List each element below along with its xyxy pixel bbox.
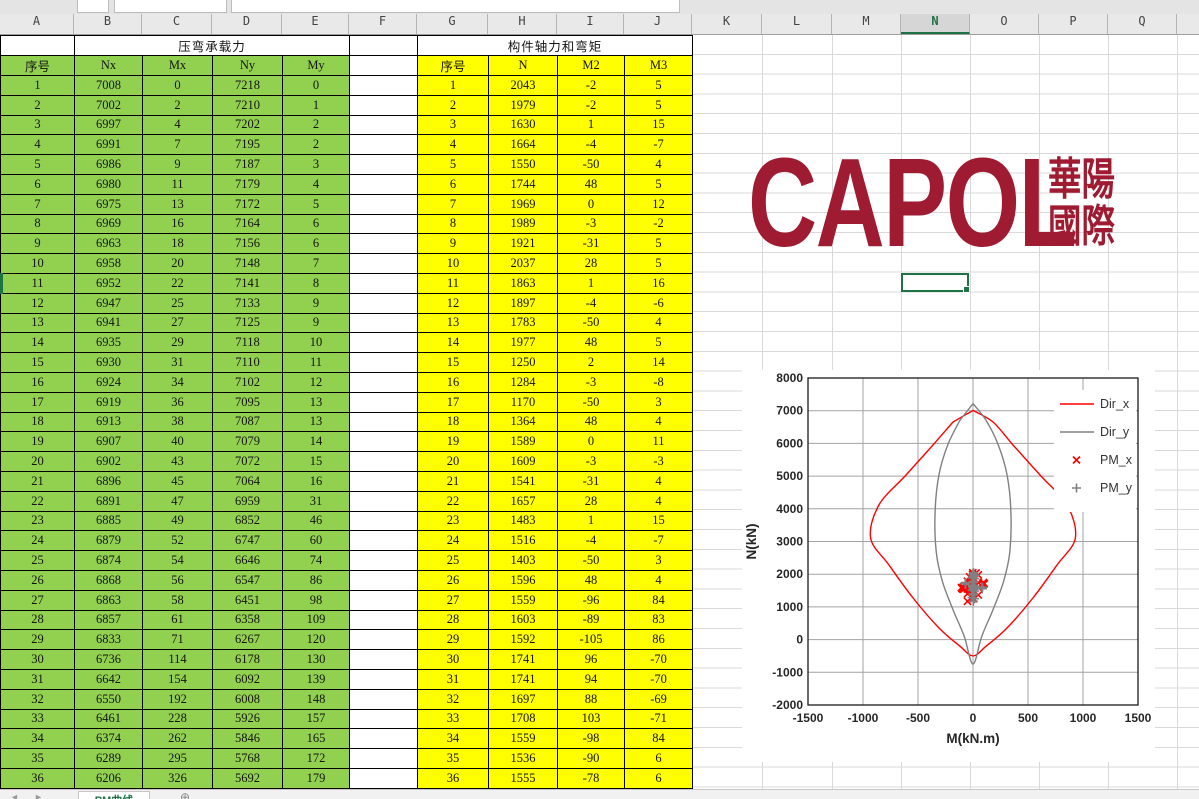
cell[interactable] <box>350 471 418 491</box>
cell[interactable]: 24 <box>418 531 489 551</box>
selected-cell[interactable] <box>901 273 969 292</box>
cell[interactable]: 1559 <box>489 729 558 749</box>
cell[interactable]: -2 <box>625 214 693 234</box>
cell[interactable]: 6958 <box>75 254 143 274</box>
column-header-c[interactable]: C <box>142 14 212 34</box>
cell[interactable]: 45 <box>143 471 213 491</box>
cell[interactable]: 1863 <box>489 273 558 293</box>
cell[interactable] <box>350 392 418 412</box>
cell[interactable]: 6986 <box>75 155 143 175</box>
cell[interactable]: 6863 <box>75 590 143 610</box>
cell[interactable]: 16 <box>143 214 213 234</box>
cell[interactable]: 7141 <box>213 273 283 293</box>
cell[interactable]: 6947 <box>75 293 143 313</box>
cell[interactable]: -50 <box>558 155 625 175</box>
formula-input-edge[interactable] <box>231 0 680 13</box>
cell[interactable]: 3 <box>625 392 693 412</box>
cell[interactable] <box>350 729 418 749</box>
cell[interactable]: 7118 <box>213 333 283 353</box>
cell[interactable]: 6 <box>1 174 75 194</box>
cell[interactable]: 6879 <box>75 531 143 551</box>
cell[interactable]: 29 <box>1 630 75 650</box>
cell[interactable]: 5 <box>283 194 350 214</box>
cell[interactable]: 4 <box>625 570 693 590</box>
cell[interactable]: 7102 <box>213 372 283 392</box>
cell[interactable]: 6941 <box>75 313 143 333</box>
cell[interactable]: 6550 <box>75 689 143 709</box>
cell[interactable]: -70 <box>625 669 693 689</box>
cell[interactable]: 34 <box>1 729 75 749</box>
cell[interactable]: 5 <box>625 95 693 115</box>
cell[interactable]: 4 <box>283 174 350 194</box>
cell[interactable]: 14 <box>1 333 75 353</box>
cell[interactable]: 6885 <box>75 511 143 531</box>
cell[interactable] <box>350 491 418 511</box>
cell[interactable]: 2 <box>283 115 350 135</box>
cell[interactable]: -3 <box>558 214 625 234</box>
cell[interactable]: 6969 <box>75 214 143 234</box>
cell[interactable]: 14 <box>625 353 693 373</box>
cell[interactable]: 1783 <box>489 313 558 333</box>
cell[interactable]: -50 <box>558 551 625 571</box>
cell[interactable] <box>350 511 418 531</box>
cell[interactable] <box>350 174 418 194</box>
cell[interactable]: 52 <box>143 531 213 551</box>
cell[interactable]: 6913 <box>75 412 143 432</box>
cell[interactable]: -8 <box>625 372 693 392</box>
cell[interactable]: 18 <box>418 412 489 432</box>
cell[interactable]: 1592 <box>489 630 558 650</box>
cell[interactable]: 6 <box>625 749 693 769</box>
cell[interactable]: 21 <box>1 471 75 491</box>
cell[interactable]: 1979 <box>489 95 558 115</box>
cell[interactable]: 96 <box>558 650 625 670</box>
cell[interactable]: 19 <box>418 432 489 452</box>
cell[interactable]: -3 <box>558 452 625 472</box>
cell[interactable] <box>350 135 418 155</box>
cell[interactable] <box>350 610 418 630</box>
cell[interactable]: 13 <box>283 392 350 412</box>
cell[interactable]: 130 <box>283 650 350 670</box>
sheet-tab-pm-curve[interactable]: PM曲线 <box>78 791 150 799</box>
cell[interactable]: 18 <box>1 412 75 432</box>
cell[interactable]: 10 <box>283 333 350 353</box>
cell[interactable]: 7095 <box>213 392 283 412</box>
data-tables[interactable]: 压弯承载力 构件轴力和弯矩 序号 Nx Mx Ny My 序号 N M2 M3 … <box>0 35 693 789</box>
cell[interactable]: 192 <box>143 689 213 709</box>
cell[interactable]: 7064 <box>213 471 283 491</box>
cell[interactable]: 6930 <box>75 353 143 373</box>
cell[interactable]: 13 <box>418 313 489 333</box>
cell[interactable]: 7210 <box>213 95 283 115</box>
cell[interactable]: 86 <box>625 630 693 650</box>
cell[interactable] <box>350 293 418 313</box>
cell[interactable]: 36 <box>1 768 75 788</box>
cell[interactable]: 6868 <box>75 570 143 590</box>
cell[interactable]: 9 <box>283 293 350 313</box>
cell[interactable]: 6547 <box>213 570 283 590</box>
cell[interactable] <box>350 115 418 135</box>
add-sheet-icon[interactable]: ⊕ <box>180 791 190 799</box>
cell[interactable] <box>350 768 418 788</box>
cell[interactable]: 31 <box>418 669 489 689</box>
cell[interactable] <box>350 531 418 551</box>
cell[interactable]: -2 <box>558 95 625 115</box>
cell[interactable] <box>350 630 418 650</box>
cell[interactable]: 114 <box>143 650 213 670</box>
cell[interactable]: 295 <box>143 749 213 769</box>
cell[interactable]: 179 <box>283 768 350 788</box>
cell[interactable]: -4 <box>558 135 625 155</box>
cell[interactable]: 1170 <box>489 392 558 412</box>
cell[interactable]: 1657 <box>489 491 558 511</box>
cell[interactable]: 28 <box>418 610 489 630</box>
cell[interactable]: 29 <box>143 333 213 353</box>
cell[interactable] <box>350 709 418 729</box>
cell[interactable]: 5 <box>625 333 693 353</box>
cell[interactable]: -98 <box>558 729 625 749</box>
column-header-l[interactable]: L <box>762 14 832 34</box>
cell[interactable]: 6 <box>625 768 693 788</box>
cell[interactable]: 1364 <box>489 412 558 432</box>
cell[interactable]: 12 <box>1 293 75 313</box>
name-box-edge[interactable] <box>77 0 109 13</box>
cell[interactable]: 6206 <box>75 768 143 788</box>
cell[interactable]: 10 <box>418 254 489 274</box>
cell[interactable]: 7172 <box>213 194 283 214</box>
cell[interactable] <box>350 155 418 175</box>
cell[interactable]: 15 <box>625 511 693 531</box>
cell[interactable]: 20 <box>418 452 489 472</box>
cell[interactable]: 16 <box>1 372 75 392</box>
cell[interactable]: 148 <box>283 689 350 709</box>
cell[interactable]: 6736 <box>75 650 143 670</box>
cell[interactable]: 83 <box>625 610 693 630</box>
column-header-q[interactable]: Q <box>1108 14 1177 34</box>
cell[interactable] <box>350 353 418 373</box>
cell[interactable]: 5768 <box>213 749 283 769</box>
cell[interactable]: 262 <box>143 729 213 749</box>
cell[interactable]: 1921 <box>489 234 558 254</box>
cell[interactable]: 1596 <box>489 570 558 590</box>
cell[interactable]: 1250 <box>489 353 558 373</box>
cell[interactable]: 94 <box>558 669 625 689</box>
cell[interactable]: 7110 <box>213 353 283 373</box>
cell[interactable]: 5 <box>625 254 693 274</box>
cell[interactable]: -78 <box>558 768 625 788</box>
column-header-g[interactable]: G <box>417 14 488 34</box>
column-header-n[interactable]: N <box>901 14 970 34</box>
cell[interactable]: 25 <box>1 551 75 571</box>
cell[interactable]: 1589 <box>489 432 558 452</box>
cell[interactable]: 9 <box>1 234 75 254</box>
cell[interactable]: 7164 <box>213 214 283 234</box>
cell[interactable]: 15 <box>1 353 75 373</box>
column-header-a[interactable]: A <box>0 14 74 34</box>
cell[interactable]: 46 <box>283 511 350 531</box>
cell[interactable]: 24 <box>1 531 75 551</box>
cell[interactable]: 36 <box>143 392 213 412</box>
cell[interactable]: 5846 <box>213 729 283 749</box>
cell[interactable]: -4 <box>558 531 625 551</box>
cell[interactable]: 5926 <box>213 709 283 729</box>
cell[interactable]: 6833 <box>75 630 143 650</box>
cell[interactable]: 25 <box>418 551 489 571</box>
cell[interactable]: -7 <box>625 531 693 551</box>
cell[interactable]: 40 <box>143 432 213 452</box>
cell[interactable]: 25 <box>143 293 213 313</box>
cell[interactable] <box>350 194 418 214</box>
cell[interactable]: 1744 <box>489 174 558 194</box>
cell[interactable]: 4 <box>625 412 693 432</box>
cell[interactable]: 7008 <box>75 76 143 96</box>
tab-scroll-left-icon[interactable]: ◄ <box>10 792 19 799</box>
column-header-d[interactable]: D <box>212 14 282 34</box>
cell[interactable]: 6896 <box>75 471 143 491</box>
cell[interactable]: 6959 <box>213 491 283 511</box>
cell[interactable]: 84 <box>625 729 693 749</box>
cell[interactable]: 61 <box>143 610 213 630</box>
cell[interactable]: 1 <box>1 76 75 96</box>
cell[interactable]: 14 <box>283 432 350 452</box>
cell[interactable]: 7133 <box>213 293 283 313</box>
column-header-b[interactable]: B <box>74 14 142 34</box>
cell[interactable] <box>350 689 418 709</box>
cell[interactable]: 4 <box>625 491 693 511</box>
cell[interactable]: 8 <box>283 273 350 293</box>
cell[interactable]: 13 <box>143 194 213 214</box>
cell[interactable]: 43 <box>143 452 213 472</box>
cell[interactable]: 4 <box>625 155 693 175</box>
cell[interactable]: 165 <box>283 729 350 749</box>
cell[interactable]: 6 <box>418 174 489 194</box>
cell[interactable]: 1555 <box>489 768 558 788</box>
cell[interactable]: 28 <box>1 610 75 630</box>
cell[interactable]: 17 <box>418 392 489 412</box>
cell[interactable]: 154 <box>143 669 213 689</box>
cell[interactable]: 1630 <box>489 115 558 135</box>
cell[interactable]: 38 <box>143 412 213 432</box>
cell[interactable]: 6267 <box>213 630 283 650</box>
cell[interactable] <box>350 432 418 452</box>
cell[interactable]: 8 <box>1 214 75 234</box>
cell[interactable]: 1559 <box>489 590 558 610</box>
cell[interactable]: 6997 <box>75 115 143 135</box>
cell[interactable]: 33 <box>1 709 75 729</box>
cell[interactable]: 6 <box>283 234 350 254</box>
cell[interactable]: 16 <box>418 372 489 392</box>
column-header-f[interactable]: F <box>349 14 417 34</box>
cell[interactable]: 7 <box>143 135 213 155</box>
cell[interactable] <box>350 551 418 571</box>
cell[interactable]: 6924 <box>75 372 143 392</box>
cell[interactable]: 0 <box>283 76 350 96</box>
cell[interactable]: 5 <box>418 155 489 175</box>
cell[interactable]: 326 <box>143 768 213 788</box>
cell[interactable]: 7125 <box>213 313 283 333</box>
cell[interactable] <box>350 749 418 769</box>
cell[interactable]: 13 <box>283 412 350 432</box>
cell[interactable]: 3 <box>1 115 75 135</box>
tab-scroll-right-icon[interactable]: ► <box>34 792 43 799</box>
cell[interactable]: 5 <box>1 155 75 175</box>
cell[interactable]: 98 <box>283 590 350 610</box>
cell[interactable]: 48 <box>558 333 625 353</box>
cell[interactable]: 4 <box>143 115 213 135</box>
cell[interactable]: 2 <box>418 95 489 115</box>
cell[interactable]: 172 <box>283 749 350 769</box>
cell[interactable]: 12 <box>283 372 350 392</box>
cell[interactable]: 6919 <box>75 392 143 412</box>
cell[interactable]: 58 <box>143 590 213 610</box>
cell[interactable] <box>350 570 418 590</box>
cell[interactable]: 1 <box>283 95 350 115</box>
cell[interactable]: 15 <box>625 115 693 135</box>
cell[interactable]: 5 <box>625 234 693 254</box>
cell[interactable]: 23 <box>418 511 489 531</box>
cell[interactable]: 9 <box>143 155 213 175</box>
cell[interactable]: 6008 <box>213 689 283 709</box>
cell[interactable]: 56 <box>143 570 213 590</box>
column-header-m[interactable]: M <box>832 14 901 34</box>
cell[interactable]: 35 <box>1 749 75 769</box>
cell[interactable]: 7087 <box>213 412 283 432</box>
cell[interactable]: 1541 <box>489 471 558 491</box>
cell[interactable]: -105 <box>558 630 625 650</box>
cell[interactable]: 8 <box>418 214 489 234</box>
cell[interactable]: 5692 <box>213 768 283 788</box>
cell[interactable]: 7072 <box>213 452 283 472</box>
cell[interactable]: 6991 <box>75 135 143 155</box>
cell[interactable]: 33 <box>418 709 489 729</box>
cell[interactable]: 29 <box>418 630 489 650</box>
cell[interactable]: -70 <box>625 650 693 670</box>
cell-f2[interactable] <box>350 56 418 76</box>
cell[interactable]: 88 <box>558 689 625 709</box>
cell[interactable]: 12 <box>418 293 489 313</box>
cell[interactable]: 6980 <box>75 174 143 194</box>
cell[interactable]: 22 <box>418 491 489 511</box>
cell[interactable]: 71 <box>143 630 213 650</box>
cell[interactable]: 1 <box>558 511 625 531</box>
cell[interactable]: 30 <box>418 650 489 670</box>
cell[interactable]: 1516 <box>489 531 558 551</box>
cell[interactable]: 7218 <box>213 76 283 96</box>
cell[interactable]: 6451 <box>213 590 283 610</box>
cell[interactable]: 109 <box>283 610 350 630</box>
cell[interactable]: 1 <box>558 115 625 135</box>
cell[interactable]: 1989 <box>489 214 558 234</box>
cell[interactable]: 84 <box>625 590 693 610</box>
cell[interactable]: -69 <box>625 689 693 709</box>
cell[interactable]: 7002 <box>75 95 143 115</box>
cell[interactable]: 11 <box>625 432 693 452</box>
cell[interactable]: 1 <box>558 273 625 293</box>
cell[interactable]: 28 <box>558 491 625 511</box>
cell[interactable]: 27 <box>1 590 75 610</box>
cell[interactable]: 11 <box>418 273 489 293</box>
cell[interactable]: 6852 <box>213 511 283 531</box>
cell-f1[interactable] <box>350 36 418 56</box>
cell[interactable]: 7 <box>283 254 350 274</box>
cell-a1[interactable] <box>1 36 75 56</box>
cell[interactable]: 26 <box>1 570 75 590</box>
cell[interactable]: 12 <box>625 194 693 214</box>
cell[interactable]: 1284 <box>489 372 558 392</box>
cell[interactable]: 22 <box>143 273 213 293</box>
cell[interactable]: -96 <box>558 590 625 610</box>
cell[interactable]: 1609 <box>489 452 558 472</box>
cell[interactable]: 20 <box>1 452 75 472</box>
cell[interactable] <box>350 76 418 96</box>
cell[interactable]: 139 <box>283 669 350 689</box>
cell[interactable]: 6902 <box>75 452 143 472</box>
cell[interactable]: -7 <box>625 135 693 155</box>
cell[interactable]: 32 <box>418 689 489 709</box>
cell[interactable]: -50 <box>558 313 625 333</box>
cell[interactable]: 30 <box>1 650 75 670</box>
cell[interactable]: 2 <box>143 95 213 115</box>
cell[interactable]: 1550 <box>489 155 558 175</box>
cell[interactable]: 6289 <box>75 749 143 769</box>
cell[interactable]: 6891 <box>75 491 143 511</box>
cell[interactable]: 7195 <box>213 135 283 155</box>
cell[interactable] <box>350 333 418 353</box>
cell[interactable]: 6461 <box>75 709 143 729</box>
cell[interactable]: 6 <box>283 214 350 234</box>
cell[interactable]: -71 <box>625 709 693 729</box>
cell[interactable]: 6907 <box>75 432 143 452</box>
cell[interactable]: -31 <box>558 471 625 491</box>
cell[interactable]: 6935 <box>75 333 143 353</box>
cell[interactable]: 16 <box>625 273 693 293</box>
cell[interactable]: 19 <box>1 432 75 452</box>
cell[interactable]: 5 <box>625 76 693 96</box>
cell[interactable] <box>350 412 418 432</box>
cell[interactable]: 4 <box>418 135 489 155</box>
cell[interactable]: -3 <box>625 452 693 472</box>
cell[interactable]: 7179 <box>213 174 283 194</box>
cell[interactable]: 1664 <box>489 135 558 155</box>
cell[interactable]: 228 <box>143 709 213 729</box>
cell[interactable] <box>350 273 418 293</box>
cell[interactable]: 1969 <box>489 194 558 214</box>
column-header-i[interactable]: I <box>557 14 624 34</box>
cell[interactable]: 1483 <box>489 511 558 531</box>
cell[interactable]: 48 <box>558 570 625 590</box>
cell[interactable]: 28 <box>558 254 625 274</box>
cell[interactable] <box>350 590 418 610</box>
cell[interactable]: 6952 <box>75 273 143 293</box>
cell[interactable]: -3 <box>558 372 625 392</box>
cell[interactable]: 0 <box>558 432 625 452</box>
column-header-o[interactable]: O <box>970 14 1039 34</box>
cell[interactable]: 86 <box>283 570 350 590</box>
cell[interactable]: 7148 <box>213 254 283 274</box>
cell[interactable]: -2 <box>558 76 625 96</box>
cell[interactable]: 7202 <box>213 115 283 135</box>
cell[interactable]: 1741 <box>489 669 558 689</box>
cell[interactable]: 6857 <box>75 610 143 630</box>
cell[interactable]: -50 <box>558 392 625 412</box>
cell[interactable]: 60 <box>283 531 350 551</box>
cell[interactable]: 32 <box>1 689 75 709</box>
cell[interactable]: 7 <box>418 194 489 214</box>
cell[interactable]: 157 <box>283 709 350 729</box>
cell[interactable]: 16 <box>283 471 350 491</box>
cell[interactable]: 9 <box>283 313 350 333</box>
cell[interactable]: 3 <box>283 155 350 175</box>
